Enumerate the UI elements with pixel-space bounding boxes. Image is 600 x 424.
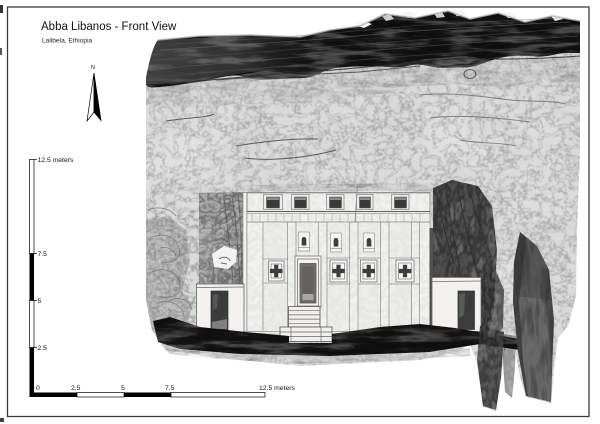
svg-text:12.5 meters: 12.5 meters (38, 157, 74, 164)
svg-text:5: 5 (38, 298, 42, 305)
svg-text:0: 0 (36, 385, 40, 392)
svg-text:5: 5 (121, 385, 125, 392)
svg-text:2.5: 2.5 (38, 345, 48, 352)
svg-text:Lalibela, Ethiopia: Lalibela, Ethiopia (42, 38, 93, 45)
svg-text:2,5: 2,5 (71, 385, 81, 392)
svg-text:N: N (91, 65, 95, 71)
svg-text:7,5: 7,5 (165, 385, 175, 392)
svg-text:Abba Libanos - Front View: Abba Libanos - Front View (41, 21, 177, 33)
svg-text:7.5: 7.5 (38, 251, 48, 258)
svg-text:12,5 meters: 12,5 meters (259, 385, 295, 392)
